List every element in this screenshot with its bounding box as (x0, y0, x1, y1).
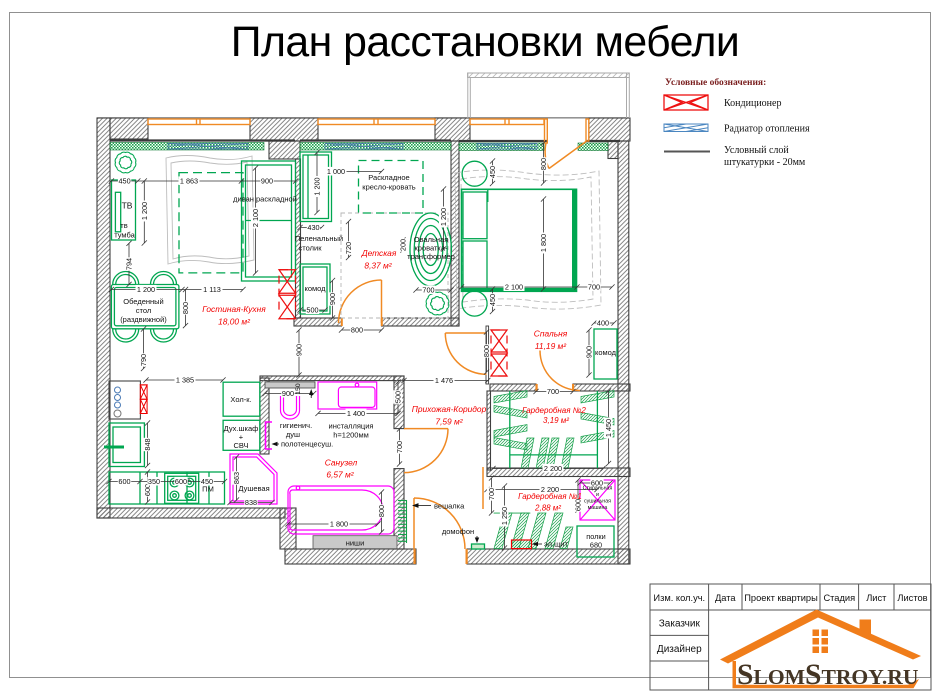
svg-text:1 113: 1 113 (203, 285, 221, 294)
svg-text:1 400: 1 400 (347, 409, 365, 418)
svg-text:Проект квартиры: Проект квартиры (744, 593, 818, 603)
svg-text:430: 430 (307, 223, 319, 232)
svg-text:6,57 м²: 6,57 м² (326, 470, 354, 480)
svg-text:400: 400 (597, 319, 609, 328)
svg-text:Гостиная-Кухня: Гостиная-Кухня (202, 304, 266, 314)
svg-text:500: 500 (306, 306, 318, 315)
svg-text:350: 350 (148, 477, 160, 486)
svg-text:Условные обозначения:: Условные обозначения: (665, 77, 766, 88)
svg-text:790: 790 (139, 354, 148, 366)
svg-text:900: 900 (282, 389, 294, 398)
svg-text:900: 900 (295, 344, 304, 356)
svg-text:450: 450 (488, 294, 497, 306)
svg-text:7,59 м²: 7,59 м² (435, 417, 463, 427)
svg-text:18,00 м²: 18,00 м² (218, 317, 251, 327)
svg-text:848: 848 (143, 438, 152, 450)
svg-text:эл.щит: эл.щит (544, 540, 568, 549)
svg-text:1 250: 1 250 (500, 507, 509, 525)
svg-text:стол: стол (136, 306, 151, 315)
svg-text:Раскладное: Раскладное (368, 173, 409, 182)
svg-text:Санузел: Санузел (325, 458, 358, 468)
svg-text:кресло-кровать: кресло-кровать (362, 183, 415, 192)
svg-text:Стиральная: Стиральная (583, 486, 613, 492)
svg-text:столик: столик (299, 244, 323, 253)
svg-text:штукатурки - 20мм: штукатурки - 20мм (724, 157, 806, 168)
svg-text:1 800: 1 800 (539, 234, 548, 252)
svg-text:Спальня: Спальня (534, 329, 568, 339)
svg-text:Хол-к.: Хол-к. (230, 395, 251, 404)
svg-text:ПМ: ПМ (202, 485, 214, 494)
svg-text:1 450: 1 450 (604, 419, 613, 437)
svg-text:диван раскладной: диван раскладной (233, 195, 297, 204)
svg-text:душ: душ (286, 430, 300, 439)
svg-text:8,37 м²: 8,37 м² (364, 261, 392, 271)
svg-text:тумба: тумба (114, 231, 135, 240)
svg-text:Детская: Детская (361, 248, 397, 258)
svg-text:Пеленальный: Пеленальный (295, 234, 343, 243)
svg-text:600: 600 (118, 477, 130, 486)
svg-text:вешалка: вешалка (434, 502, 465, 511)
svg-text:863: 863 (232, 472, 241, 484)
svg-text:700: 700 (588, 283, 600, 292)
svg-text:200: 200 (399, 239, 408, 251)
svg-text:1 000: 1 000 (327, 167, 345, 176)
svg-text:800: 800 (377, 505, 386, 517)
svg-text:1 200: 1 200 (439, 208, 448, 226)
svg-text:сушильная: сушильная (584, 499, 611, 505)
svg-text:900: 900 (328, 293, 337, 305)
svg-text:800: 800 (181, 302, 190, 314)
svg-text:гигиенич.: гигиенич. (280, 421, 312, 430)
svg-text:450: 450 (119, 177, 131, 186)
svg-text:1 863: 1 863 (180, 177, 198, 186)
svg-text:комод: комод (595, 348, 617, 357)
svg-text:Гардеробная №1: Гардеробная №1 (518, 492, 582, 501)
svg-text:трансформер: трансформер (407, 252, 455, 261)
svg-text:Дизайнер: Дизайнер (657, 644, 702, 655)
svg-text:Листов: Листов (897, 593, 927, 603)
svg-text:План расстановки мебели: План расстановки мебели (231, 18, 739, 66)
svg-text:11,19 м²: 11,19 м² (535, 341, 567, 351)
svg-text:1 200: 1 200 (140, 202, 149, 220)
svg-text:794: 794 (125, 258, 134, 270)
svg-text:150: 150 (295, 383, 302, 395)
svg-text:Стадия: Стадия (823, 593, 855, 603)
svg-text:700: 700 (395, 441, 404, 453)
svg-text:2 100: 2 100 (505, 283, 523, 292)
svg-text:и: и (596, 492, 599, 498)
svg-text:680: 680 (590, 541, 602, 550)
svg-text:450: 450 (488, 166, 497, 178)
svg-text:Прихожая-Коридор: Прихожая-Коридор (412, 404, 487, 414)
svg-text:Радиатор отопления: Радиатор отопления (724, 124, 810, 135)
svg-text:Условный слой: Условный слой (724, 145, 789, 156)
svg-text:900: 900 (261, 177, 273, 186)
svg-text:800: 800 (351, 326, 363, 335)
svg-text:3,19 м²: 3,19 м² (543, 416, 569, 425)
svg-text:СВЧ: СВЧ (233, 441, 248, 450)
svg-text:полотенцесуш.: полотенцесуш. (281, 440, 333, 449)
svg-text:инсталляция: инсталляция (329, 422, 374, 431)
svg-text:720: 720 (344, 242, 353, 254)
svg-text:800: 800 (539, 158, 548, 170)
svg-text:1 200: 1 200 (313, 177, 322, 195)
svg-text:2,88 м²: 2,88 м² (534, 504, 561, 513)
svg-text:Гардеробная №2: Гардеробная №2 (522, 406, 586, 415)
svg-text:1 200: 1 200 (137, 285, 155, 294)
svg-text:(раздвижной): (раздвижной) (120, 315, 167, 324)
svg-text:800: 800 (482, 345, 491, 357)
svg-text:500: 500 (394, 391, 403, 403)
svg-text:машина: машина (588, 505, 608, 511)
svg-text:ТВ: ТВ (122, 201, 133, 211)
svg-text:838: 838 (245, 498, 257, 507)
svg-text:700: 700 (547, 387, 559, 396)
svg-text:700: 700 (487, 488, 496, 500)
svg-text:2 200: 2 200 (544, 464, 562, 473)
svg-text:700: 700 (422, 286, 434, 295)
svg-text:ниши: ниши (346, 539, 365, 548)
svg-text:1 476: 1 476 (435, 376, 453, 385)
svg-text:Заказчик: Заказчик (659, 619, 701, 630)
svg-text:2 100: 2 100 (251, 209, 260, 227)
svg-text:Душевая: Душевая (238, 484, 269, 493)
svg-text:Лист: Лист (866, 593, 887, 603)
svg-text:1 385: 1 385 (176, 376, 194, 385)
svg-text:Дата: Дата (715, 593, 736, 603)
svg-text:900: 900 (585, 346, 594, 358)
svg-text:600: 600 (175, 477, 187, 486)
svg-text:домофон: домофон (442, 527, 474, 536)
svg-text:тв: тв (120, 221, 127, 230)
svg-text:комод: комод (304, 284, 326, 293)
svg-text:h=1200мм: h=1200мм (333, 431, 369, 440)
svg-text:Кондиционер: Кондиционер (724, 98, 781, 109)
svg-text:Изм. кол.уч.: Изм. кол.уч. (653, 593, 705, 603)
svg-text:Обеденный: Обеденный (123, 297, 163, 306)
svg-text:1 800: 1 800 (330, 520, 348, 529)
